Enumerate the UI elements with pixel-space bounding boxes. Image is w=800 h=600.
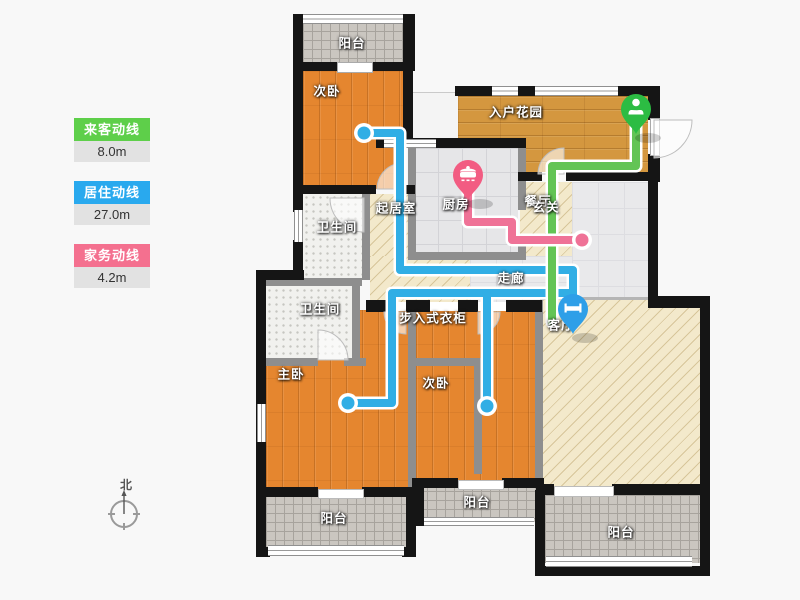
legend-item-residence: 居住动线 27.0m [74, 181, 150, 225]
legend-guest-length: 8.0m [74, 141, 150, 162]
legend-guest-toggle[interactable]: 来客动线 [74, 118, 150, 141]
floorplan-page: { "legend": { "items": [ {"id":"guest","… [0, 0, 800, 600]
guest-route-pin [621, 94, 651, 134]
housework-route-pin [453, 160, 483, 200]
legend-item-housework: 家务动线 4.2m [74, 244, 150, 288]
legend-residence-toggle[interactable]: 居住动线 [74, 181, 150, 204]
compass-icon [98, 478, 154, 534]
legend-residence-length: 27.0m [74, 204, 150, 225]
north-compass: 北 [98, 478, 154, 534]
route-legend: 来客动线 8.0m 居住动线 27.0m 家务动线 4.2m [74, 118, 150, 307]
residence-route-pin [558, 294, 588, 334]
legend-housework-length: 4.2m [74, 267, 150, 288]
legend-housework-toggle[interactable]: 家务动线 [74, 244, 150, 267]
legend-item-guest: 来客动线 8.0m [74, 118, 150, 162]
